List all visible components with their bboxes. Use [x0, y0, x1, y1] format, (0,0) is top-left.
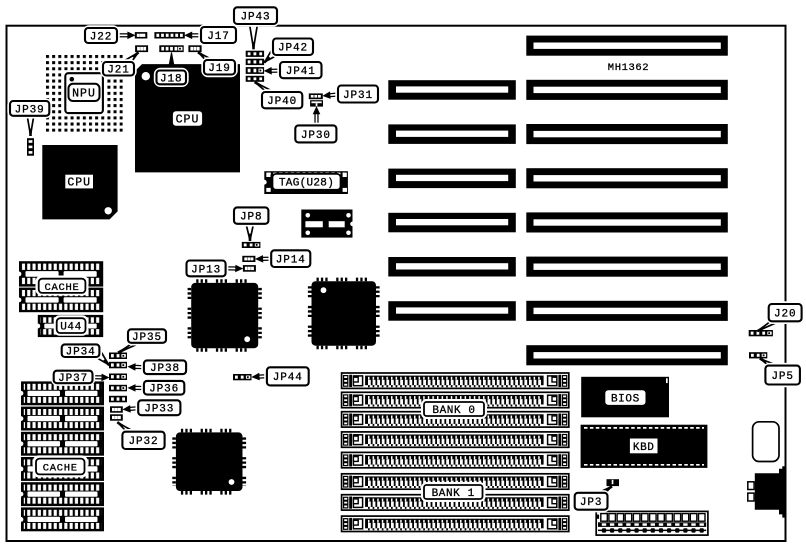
svg-text:JP37: JP37 — [58, 373, 88, 385]
svg-text:MH1362: MH1362 — [608, 62, 649, 74]
svg-text:U44: U44 — [60, 322, 82, 334]
svg-text:BIOS: BIOS — [611, 393, 640, 405]
svg-text:CPU: CPU — [176, 113, 200, 126]
svg-text:JP35: JP35 — [132, 332, 162, 344]
svg-text:BANK 1: BANK 1 — [432, 488, 475, 500]
svg-text:JP30: JP30 — [301, 130, 331, 142]
svg-text:JP3: JP3 — [580, 497, 603, 509]
svg-text:JP31: JP31 — [343, 90, 373, 102]
svg-text:JP32: JP32 — [128, 436, 158, 448]
svg-text:CPU: CPU — [67, 176, 91, 189]
svg-text:JP5: JP5 — [771, 371, 794, 383]
svg-text:J21: J21 — [107, 65, 130, 77]
svg-text:JP36: JP36 — [149, 384, 179, 396]
svg-text:JP44: JP44 — [273, 372, 303, 384]
svg-text:JP42: JP42 — [278, 43, 308, 55]
svg-text:JP41: JP41 — [286, 66, 316, 78]
svg-text:JP33: JP33 — [144, 404, 174, 416]
svg-text:JP43: JP43 — [240, 12, 270, 24]
svg-text:JP38: JP38 — [150, 363, 180, 375]
svg-text:NPU: NPU — [72, 88, 96, 101]
svg-text:J17: J17 — [207, 31, 230, 43]
svg-text:J20: J20 — [774, 309, 797, 321]
svg-text:CACHE: CACHE — [44, 282, 79, 294]
svg-text:J22: J22 — [90, 31, 113, 43]
svg-text:BANK 0: BANK 0 — [432, 405, 475, 417]
svg-text:JP40: JP40 — [267, 96, 297, 108]
svg-text:J19: J19 — [208, 63, 231, 75]
svg-text:JP13: JP13 — [191, 264, 221, 276]
svg-text:J18: J18 — [160, 73, 183, 85]
svg-text:JP8: JP8 — [240, 212, 263, 224]
svg-text:KBD: KBD — [633, 442, 655, 454]
svg-text:TAG(U28): TAG(U28) — [279, 178, 334, 190]
svg-text:JP39: JP39 — [15, 104, 45, 116]
svg-text:JP14: JP14 — [276, 255, 306, 267]
svg-text:JP34: JP34 — [66, 347, 96, 359]
svg-text:CACHE: CACHE — [43, 463, 78, 475]
